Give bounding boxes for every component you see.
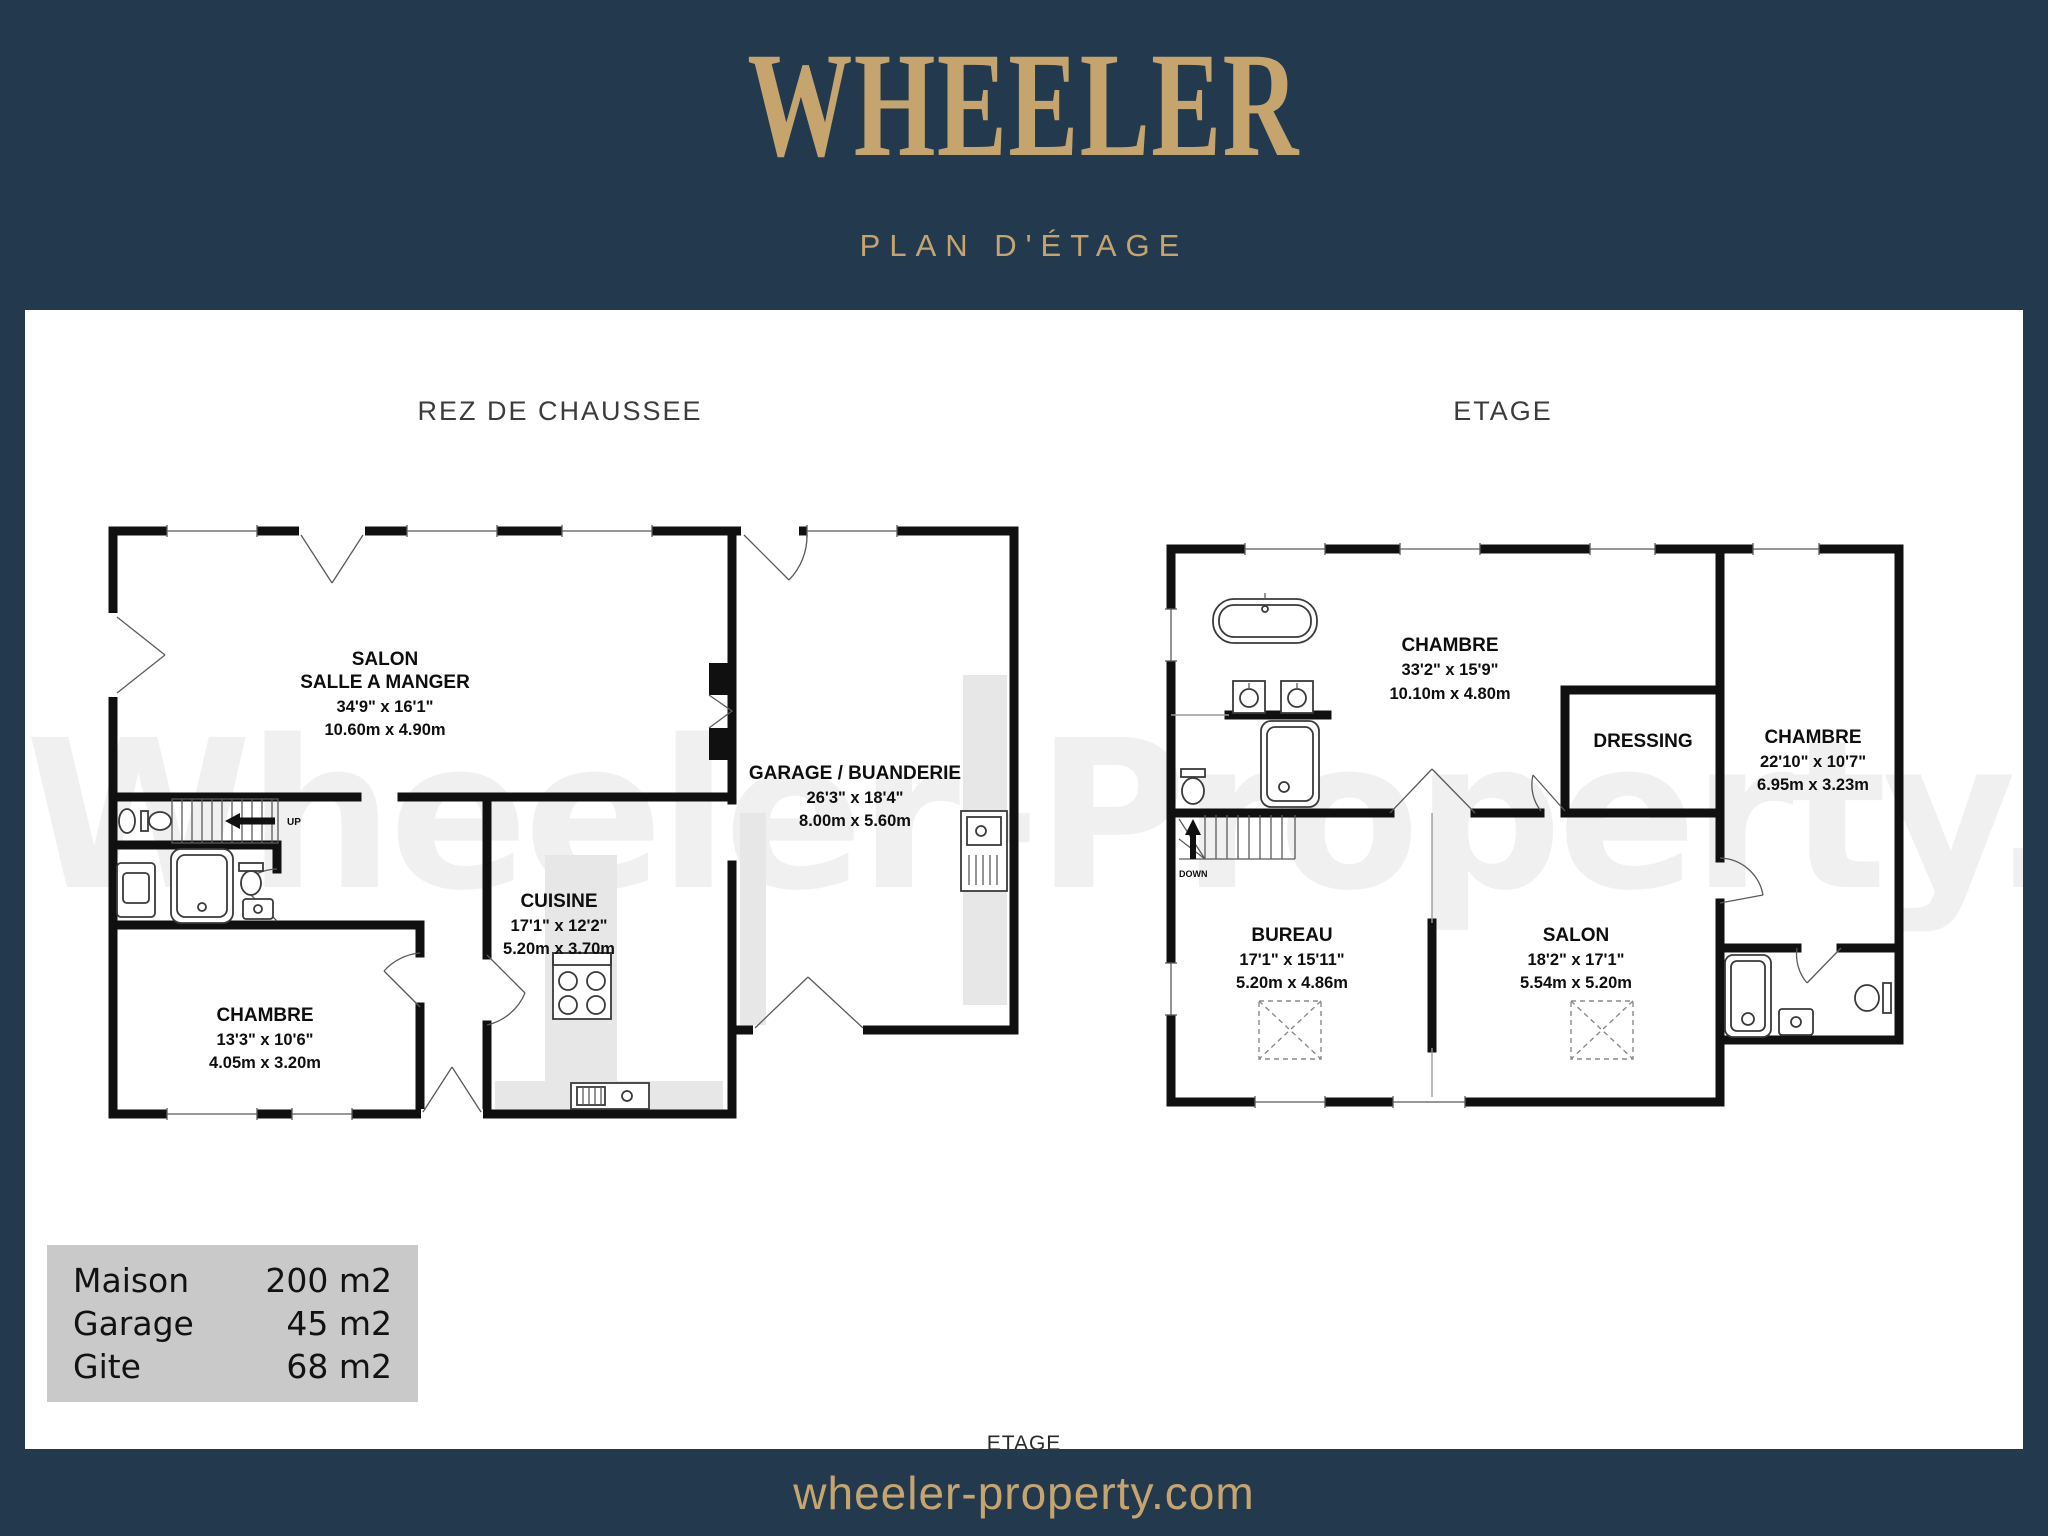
stairs-down-label: DOWN [1179,869,1208,879]
room-label: CHAMBRE [216,1005,313,1026]
room-dims-metric: 10.10m x 4.80m [1389,685,1510,703]
room-dims-metric: 10.60m x 4.90m [324,721,445,739]
room-label: SALLE A MANGER [300,672,470,693]
bathroom-fixtures [1725,955,1891,1037]
legend-value: 200 m2 [265,1259,392,1302]
staircase: UP [172,799,301,843]
legend-label: Garage [73,1302,194,1345]
room-dims-metric: 5.20m x 3.70m [503,940,615,958]
toilet-icon [1181,769,1205,804]
room-dims-imperial: 34'9" x 16'1" [337,698,434,716]
page-subtitle: PLAN D'ÉTAGE [0,228,2048,264]
legend-label: Gite [73,1345,141,1388]
sink-icon [243,899,273,919]
sink-icon [119,809,135,833]
room-dims-imperial: 17'1" x 12'2" [511,917,608,935]
footer-url: wheeler-property.com [793,1466,1254,1520]
sink-icon [1779,1009,1813,1035]
brand-title: WHEELER [0,30,2048,180]
room-dims-imperial: 22'10" x 10'7" [1760,753,1866,771]
room-label: CHAMBRE [1764,727,1861,748]
floorplan-canvas: Wheeler-Property.com REZ DE CHAUSSEE ETA… [25,310,2023,1449]
sink-icon [1281,681,1313,713]
toilet-icon [239,863,263,895]
upper-floor-plan: DOWN [1165,543,1905,1108]
room-label: GARAGE / BUANDERIE [749,763,961,784]
shower-bath-icon [1725,955,1771,1037]
room-dims-metric: 5.54m x 5.20m [1520,974,1632,992]
area-legend: Maison 200 m2 Garage 45 m2 Gite 68 m2 [47,1245,418,1402]
upper-floor-title: ETAGE [1253,396,1753,427]
legend-value: 68 m2 [286,1345,392,1388]
page-bottom-label: ETAGE [25,1432,2023,1449]
room-dims-imperial: 18'2" x 17'1" [1528,951,1625,969]
kitchen-sink-icon [571,1083,649,1109]
room-label: CHAMBRE [1401,635,1498,656]
ground-floor-title: REZ DE CHAUSSEE [310,396,810,427]
room-dims-imperial: 26'3" x 18'4" [807,789,904,807]
ground-floor-plan: UP [107,525,1020,1120]
room-dims-imperial: 13'3" x 10'6" [217,1031,314,1049]
stove-icon [553,953,611,1019]
room-dims-metric: 8.00m x 5.60m [799,812,911,830]
room-label: SALON [1543,925,1610,946]
stairs-up-label: UP [287,817,301,828]
toilet-icon [141,811,171,831]
bathroom-fixtures [1181,593,1319,807]
legend-value: 45 m2 [286,1302,392,1345]
room-dims-metric: 5.20m x 4.86m [1236,974,1348,992]
footer: wheeler-property.com [0,1449,2048,1536]
room-dims-imperial: 17'1" x 15'11" [1239,951,1344,969]
bathtub-icon [171,849,233,923]
room-dims-metric: 4.05m x 3.20m [209,1054,321,1072]
room-dims-imperial: 33'2" x 15'9" [1402,661,1499,679]
room-label: BUREAU [1251,925,1332,946]
room-label: DRESSING [1593,731,1692,752]
bathtub-icon [1213,593,1317,643]
garage-door-icon [961,811,1007,891]
room-label: SALON [352,649,419,670]
room-label: CUISINE [520,891,597,912]
interior-walls [113,531,732,1114]
staircase: DOWN [1179,815,1295,879]
shower-bath-icon [1261,721,1319,807]
legend-row: Garage 45 m2 [73,1302,392,1345]
sink-icon [117,863,155,917]
legend-row: Maison 200 m2 [73,1259,392,1302]
velux-icon [1259,1001,1633,1059]
sink-icon [1233,681,1265,713]
room-dims-metric: 6.95m x 3.23m [1757,776,1869,794]
legend-row: Gite 68 m2 [73,1345,392,1388]
wc-fixtures [119,809,171,833]
bathroom-fixtures [117,849,273,923]
toilet-icon [1855,983,1891,1013]
flyer-page: { "header": { "brand": "WHEELER", "subti… [0,0,2048,1536]
legend-label: Maison [73,1259,189,1302]
